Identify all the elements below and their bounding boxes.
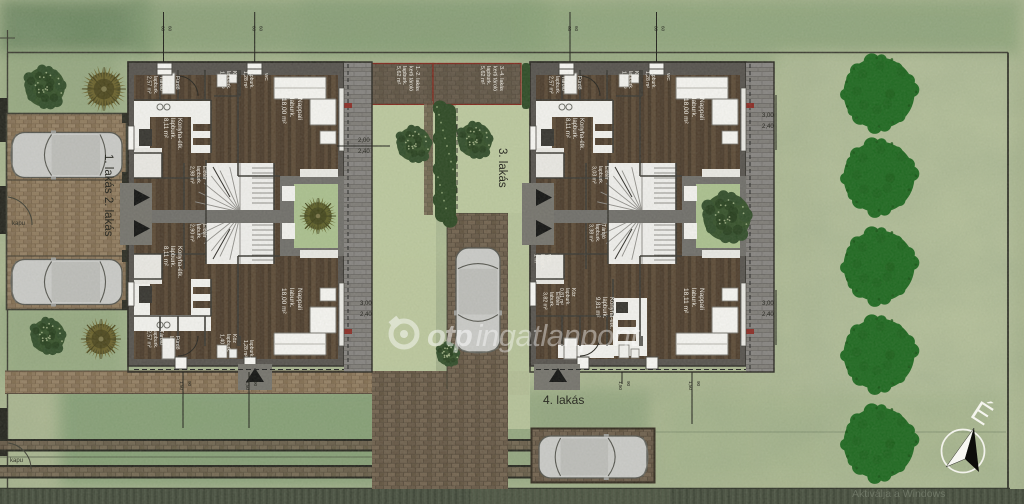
svg-text:otpingatlanpont: otpingatlanpont xyxy=(427,318,640,353)
svg-text:Aktiválja a Windows: Aktiválja a Windows xyxy=(852,488,945,500)
